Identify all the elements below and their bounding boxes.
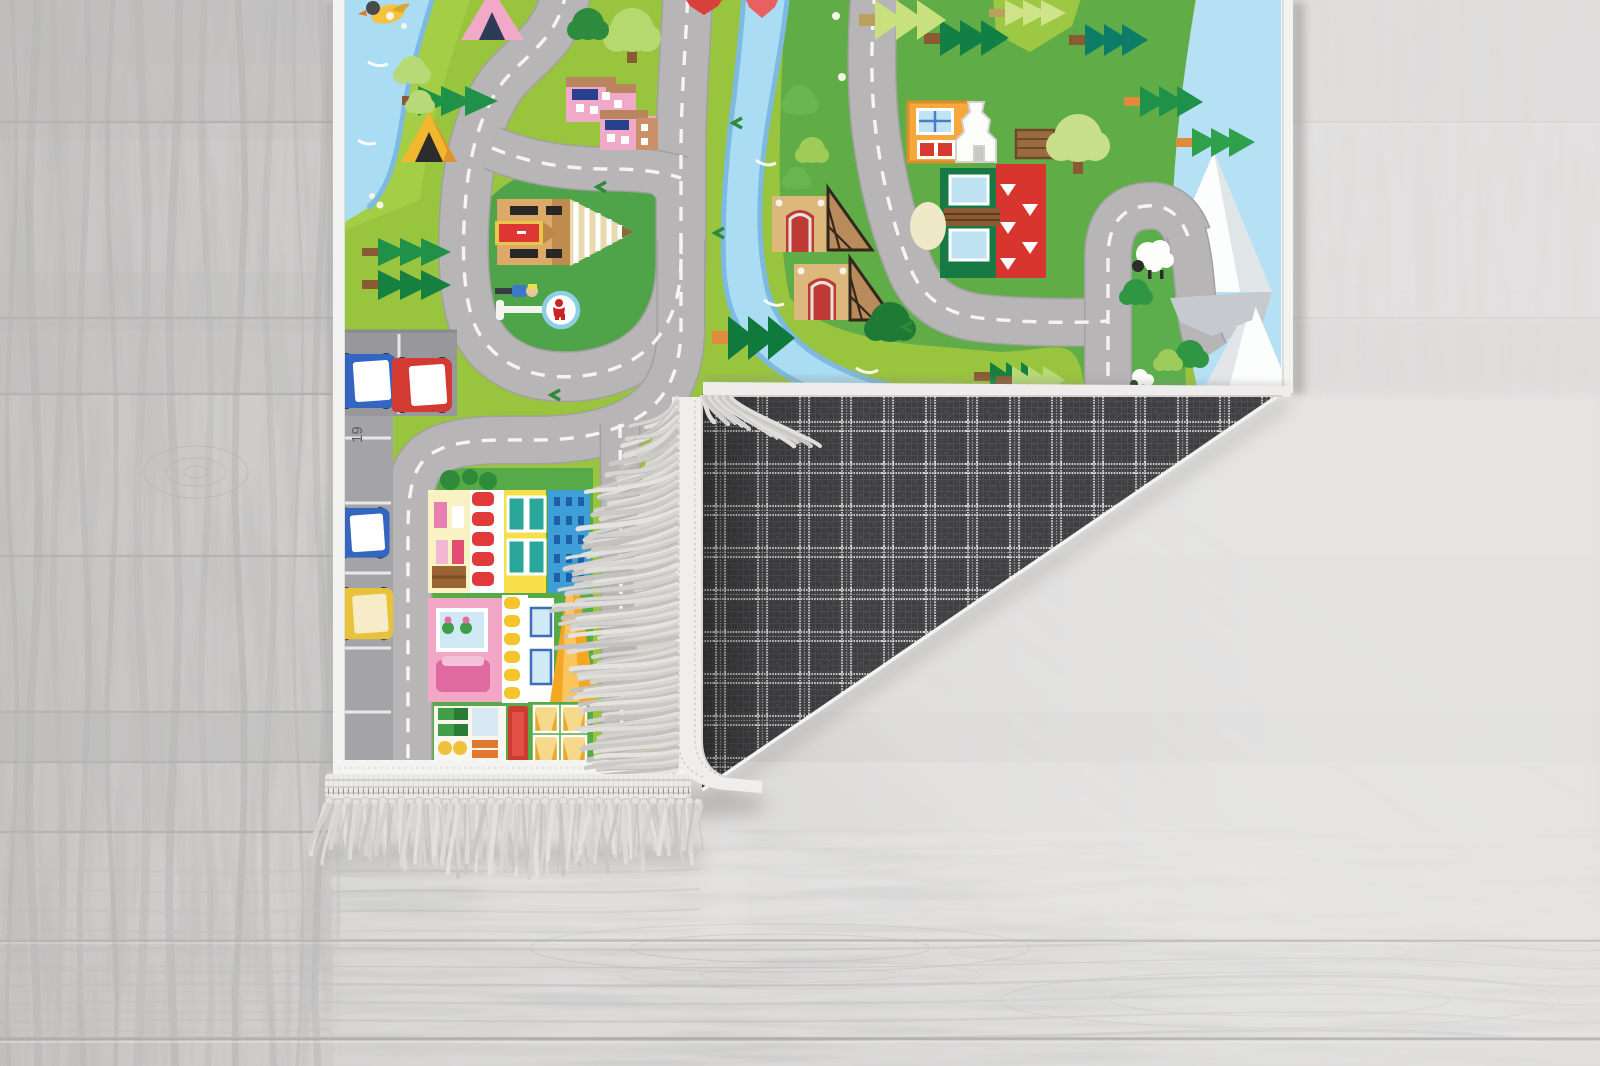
svg-text:19: 19 — [349, 426, 366, 443]
